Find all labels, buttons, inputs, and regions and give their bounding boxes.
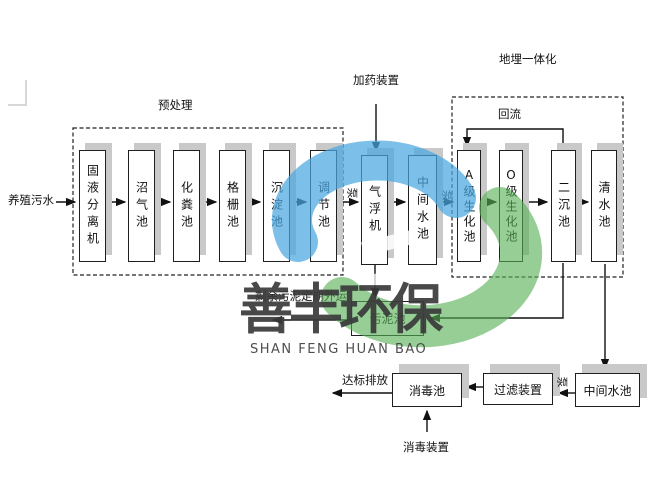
box-air-flotation-machine-label: 气浮机 bbox=[369, 185, 381, 236]
box-sludge-pool: 污泥池 bbox=[351, 301, 424, 336]
pump-label-2: 泵 bbox=[440, 190, 456, 201]
influent-label: 养殖污水 bbox=[8, 194, 54, 208]
pretreatment-label: 预处理 bbox=[158, 99, 193, 113]
box-filter-device: 过滤装置 bbox=[483, 373, 553, 405]
box-o-level-bio-pool-label: O级生化池 bbox=[505, 168, 517, 245]
box-secondary-sedimentation-label: 二沉池 bbox=[558, 181, 570, 232]
box-secondary-sedimentation: 二沉池 bbox=[551, 150, 576, 262]
discharge-label: 达标排放 bbox=[342, 374, 388, 388]
reflux-label: 回流 bbox=[498, 108, 521, 122]
box-a-level-bio-pool: A级生化池 bbox=[457, 150, 481, 262]
box-grid-pool: 格栅池 bbox=[219, 150, 246, 262]
box-solid-liquid-separator-label: 固液分离机 bbox=[87, 164, 99, 249]
dosing-device-label: 加药装置 bbox=[353, 74, 399, 88]
sludge-out-label: 剩余污泥定期外运 bbox=[255, 290, 347, 304]
box-biogas-pool-label: 沼气池 bbox=[136, 181, 148, 232]
box-o-level-bio-pool: O级生化池 bbox=[499, 150, 523, 262]
box-solid-liquid-separator: 固液分离机 bbox=[79, 150, 106, 262]
pump-label-3: 泵 bbox=[555, 377, 571, 388]
disinfection-device-label: 消毒装置 bbox=[403, 441, 449, 455]
buried-integration-label: 地埋一体化 bbox=[499, 53, 557, 67]
box-biogas-pool: 沼气池 bbox=[128, 150, 155, 262]
box-filter-device-label: 过滤装置 bbox=[494, 381, 542, 398]
box-grid-pool-label: 格栅池 bbox=[227, 181, 239, 232]
box-intermediate-pool-2-label: 中间水池 bbox=[583, 382, 631, 399]
page-corner-mark bbox=[8, 80, 26, 105]
box-disinfection-pool-label: 消毒池 bbox=[409, 382, 445, 399]
box-a-level-bio-pool-label: A级生化池 bbox=[463, 168, 475, 245]
box-sludge-pool-label: 污泥池 bbox=[369, 310, 405, 327]
box-septic-tank: 化粪池 bbox=[173, 150, 200, 262]
box-intermediate-pool-1: 中间水池 bbox=[408, 155, 437, 265]
box-air-flotation-machine: 气浮机 bbox=[361, 155, 388, 265]
box-sedimentation-pool: 沉淀池 bbox=[263, 150, 290, 262]
box-disinfection-pool: 消毒池 bbox=[392, 373, 462, 407]
box-regulating-pool-label: 调节池 bbox=[318, 181, 330, 232]
box-regulating-pool: 调节池 bbox=[310, 150, 337, 262]
box-clear-water-pool: 清水池 bbox=[591, 150, 617, 262]
box-intermediate-pool-1-label: 中间水池 bbox=[417, 176, 429, 244]
pump-label-1: 泵 bbox=[345, 188, 361, 199]
box-clear-water-pool-label: 清水池 bbox=[598, 181, 610, 232]
box-intermediate-pool-2: 中间水池 bbox=[575, 373, 640, 407]
box-sedimentation-pool-label: 沉淀池 bbox=[271, 181, 283, 232]
process-flow-diagram: 养殖污水 预处理 加药装置 地埋一体化 回流 剩余污泥定期外运 达标排放 消毒装… bbox=[0, 0, 650, 500]
box-septic-tank-label: 化粪池 bbox=[181, 181, 193, 232]
